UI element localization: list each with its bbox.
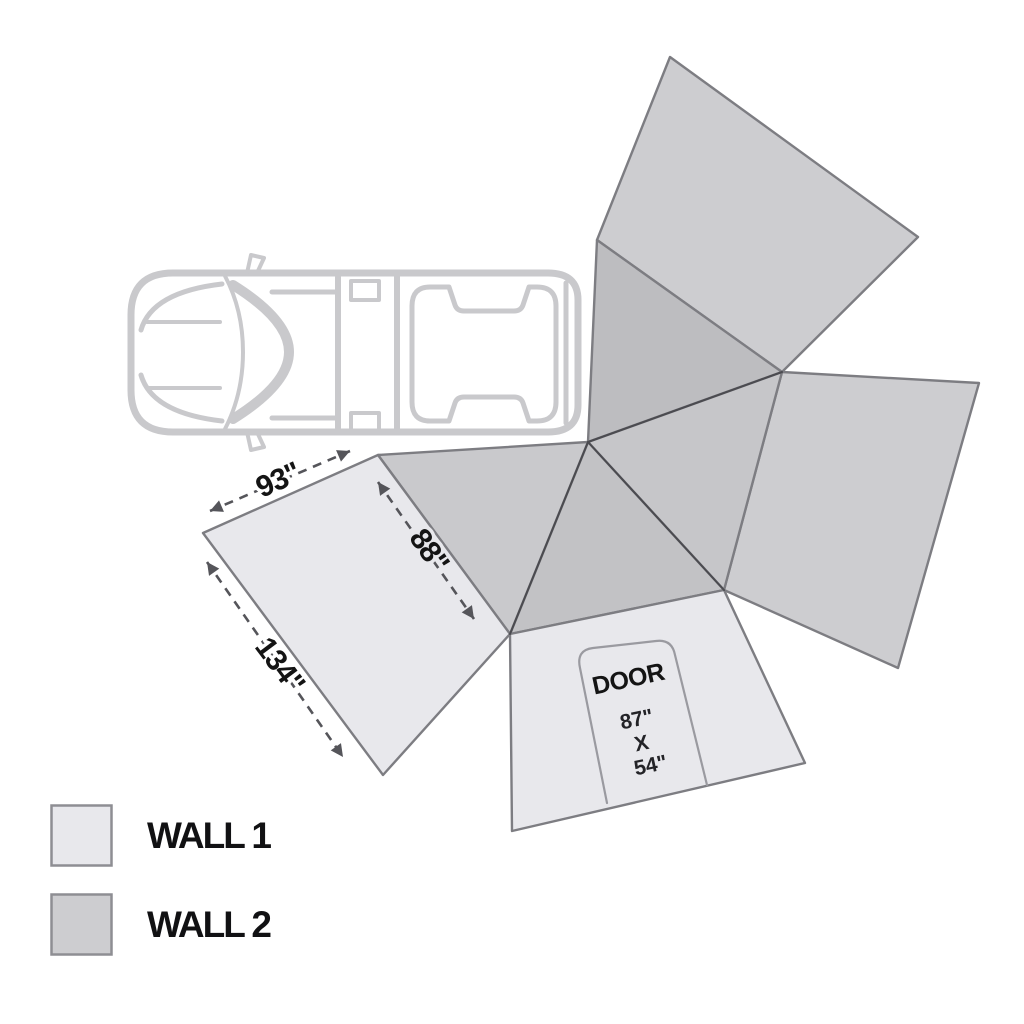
legend-label-wall1: WALL 1: [147, 815, 270, 857]
truck-cowl-line: [225, 276, 243, 429]
wall1-door-panel: [510, 590, 805, 831]
legend: WALL 1 WALL 2: [50, 804, 270, 982]
truck-body-outline: [131, 273, 578, 432]
wall1-swatch: [50, 804, 113, 867]
truck-clearance-rect-top: [351, 281, 379, 300]
truck-top-view-icon: [131, 255, 578, 450]
legend-item-wall2: WALL 2: [50, 893, 270, 956]
legend-item-wall1: WALL 1: [50, 804, 270, 867]
truck-bed-liner: [412, 287, 556, 421]
legend-label-wall2: WALL 2: [147, 904, 270, 946]
awning-wall-diagram: DOOR 87" X 54" 93" 134" 88" WALL 1: [0, 0, 1024, 1024]
wall2-swatch: [50, 893, 113, 956]
truck-hood-line-bottom: [141, 375, 222, 421]
